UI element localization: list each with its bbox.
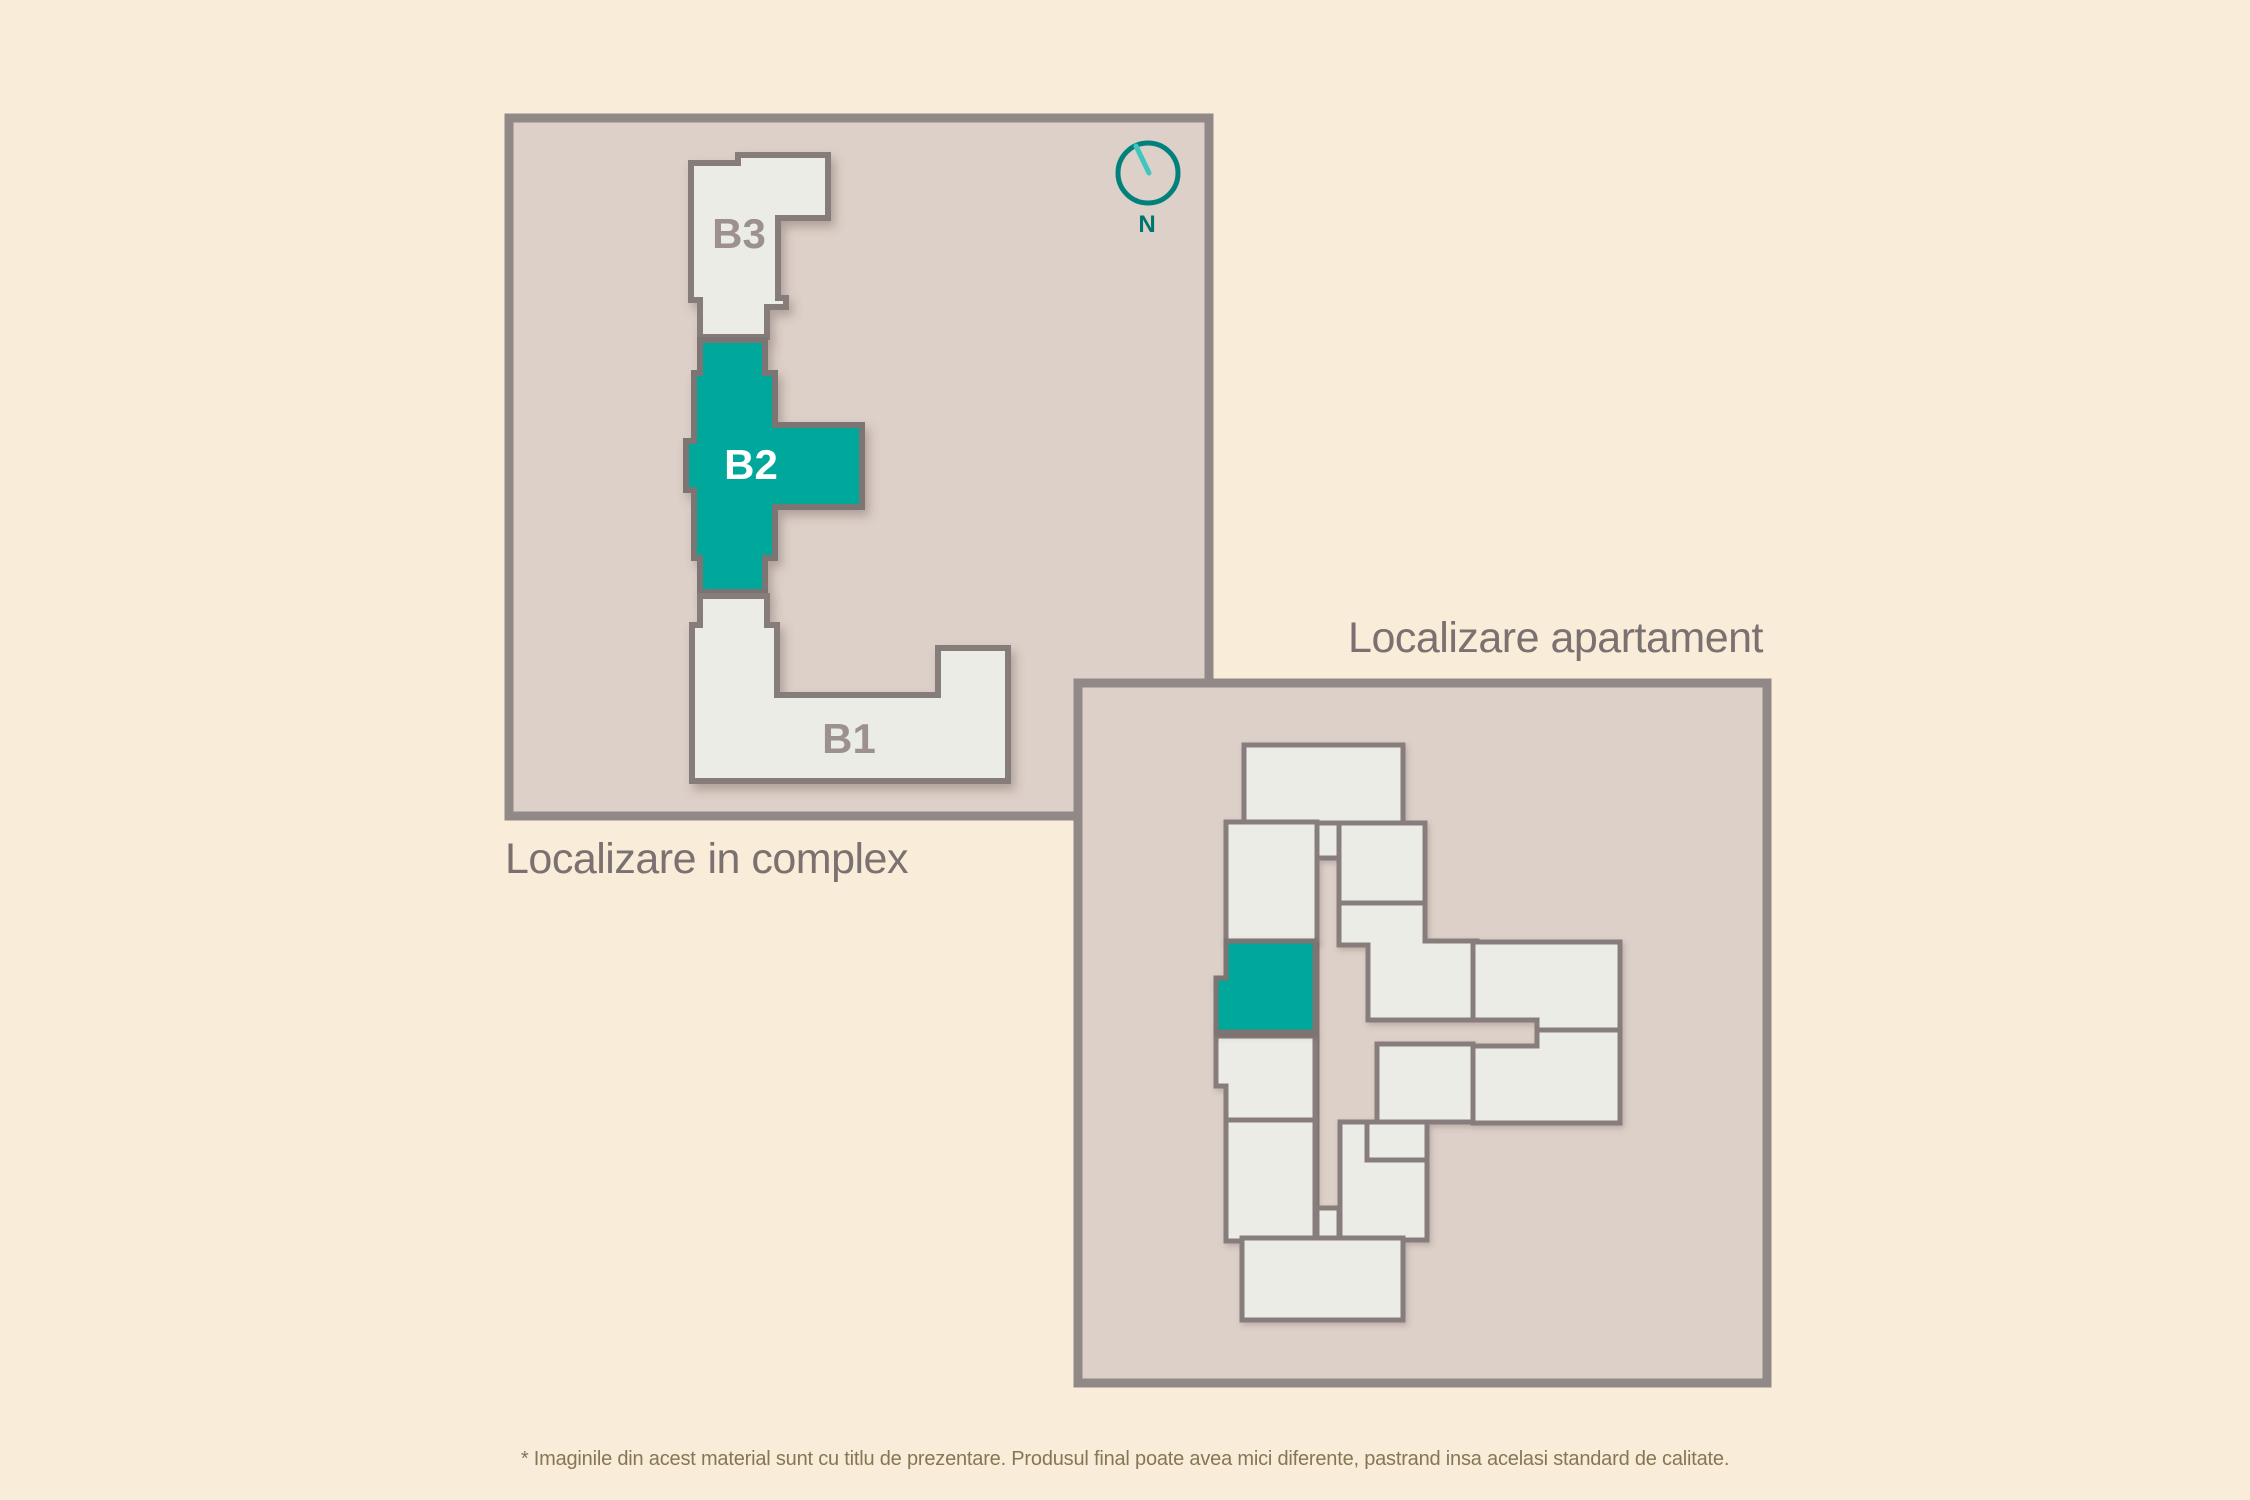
localization-graphic: B3 B2 B1 N bbox=[0, 0, 2250, 1500]
room-top bbox=[1244, 745, 1403, 823]
room-left-upper bbox=[1226, 822, 1317, 941]
room-bottom bbox=[1242, 1238, 1403, 1320]
compass-north-label: N bbox=[1138, 211, 1155, 238]
room-connector-top bbox=[1317, 823, 1339, 858]
building-b1-label: B1 bbox=[822, 715, 876, 762]
room-right-upper bbox=[1473, 942, 1620, 1030]
room-apartment-highlighted bbox=[1216, 941, 1315, 1032]
building-b3-label: B3 bbox=[712, 210, 766, 257]
room-mid-upper bbox=[1339, 823, 1425, 903]
room-left-lower bbox=[1226, 1120, 1315, 1241]
room-below-highlight bbox=[1216, 1036, 1315, 1120]
room-right-lower bbox=[1473, 1030, 1620, 1123]
room-connector-bottom bbox=[1317, 1208, 1339, 1240]
apartment-map-title: Localizare apartament bbox=[1074, 615, 1763, 662]
building-b2-label: B2 bbox=[724, 441, 778, 488]
complex-map-title: Localizare in complex bbox=[505, 836, 908, 883]
disclaimer-text: * Imaginile din acest material sunt cu t… bbox=[0, 1448, 2250, 1471]
page: { "colors": { "background": "#f9edda", "… bbox=[0, 0, 2250, 1500]
room-small-connector bbox=[1367, 1122, 1427, 1160]
apartment-map-panel bbox=[1078, 683, 1767, 1383]
room-mid-lower bbox=[1377, 1044, 1473, 1122]
